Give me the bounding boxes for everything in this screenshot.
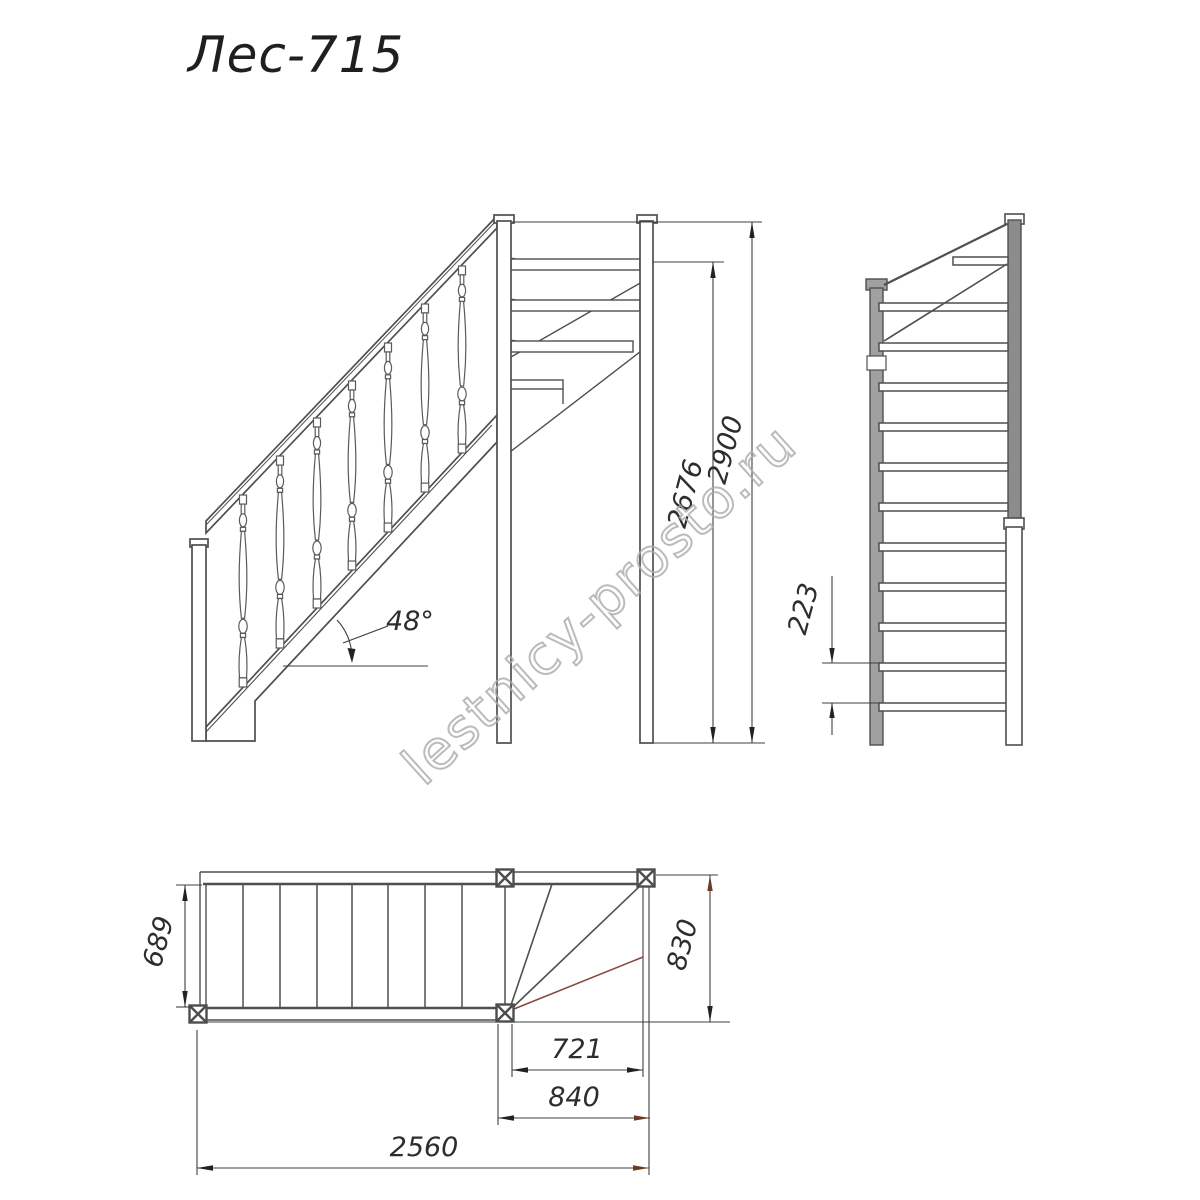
post-symbol	[497, 1005, 514, 1022]
dimension-label: 2560	[390, 1132, 459, 1163]
dimension-label: 840	[548, 1082, 600, 1113]
newel-post	[192, 545, 206, 741]
winder-tread-edge	[507, 380, 563, 389]
post-joint	[867, 356, 886, 370]
dimension-flight-width: 689	[137, 885, 202, 1007]
baluster	[458, 266, 466, 453]
baluster	[421, 304, 429, 492]
top-tread-edge	[953, 257, 1008, 265]
dimension-label: 689	[137, 913, 180, 971]
baluster	[348, 381, 356, 570]
front-view	[866, 214, 1024, 745]
angle-label: 48°	[386, 606, 434, 637]
baluster	[239, 495, 247, 687]
winder-stringer-line	[497, 345, 649, 462]
post-symbol	[190, 1006, 207, 1023]
corner-post	[1006, 527, 1022, 745]
winder-fan	[509, 884, 643, 1011]
winder-tread-edge	[511, 300, 640, 311]
dimension-label: 721	[551, 1034, 603, 1065]
drawing-sheet: Лес-715	[0, 0, 1200, 1200]
winder-tread-edge	[511, 259, 640, 270]
post-symbol	[497, 870, 514, 887]
floor-post	[640, 221, 653, 743]
plan-view	[190, 870, 731, 1176]
tread-edges	[879, 303, 1008, 711]
dimension-winder-run: 721	[512, 1024, 643, 1077]
dimension-label: 223	[782, 580, 825, 638]
drawing-title: Лес-715	[186, 26, 404, 84]
dimension-step-rise: 223	[782, 576, 880, 735]
post-symbol	[638, 870, 655, 887]
winder-tread-edge	[511, 341, 633, 352]
baluster	[384, 343, 392, 532]
dimension-winder-width: 830	[656, 875, 718, 1022]
baluster	[313, 418, 321, 608]
far-post	[1008, 220, 1021, 523]
technical-drawing: Лес-715	[0, 0, 1200, 1200]
dimension-label: 830	[661, 916, 704, 974]
plan-treads	[243, 884, 505, 1008]
baluster	[276, 456, 284, 648]
